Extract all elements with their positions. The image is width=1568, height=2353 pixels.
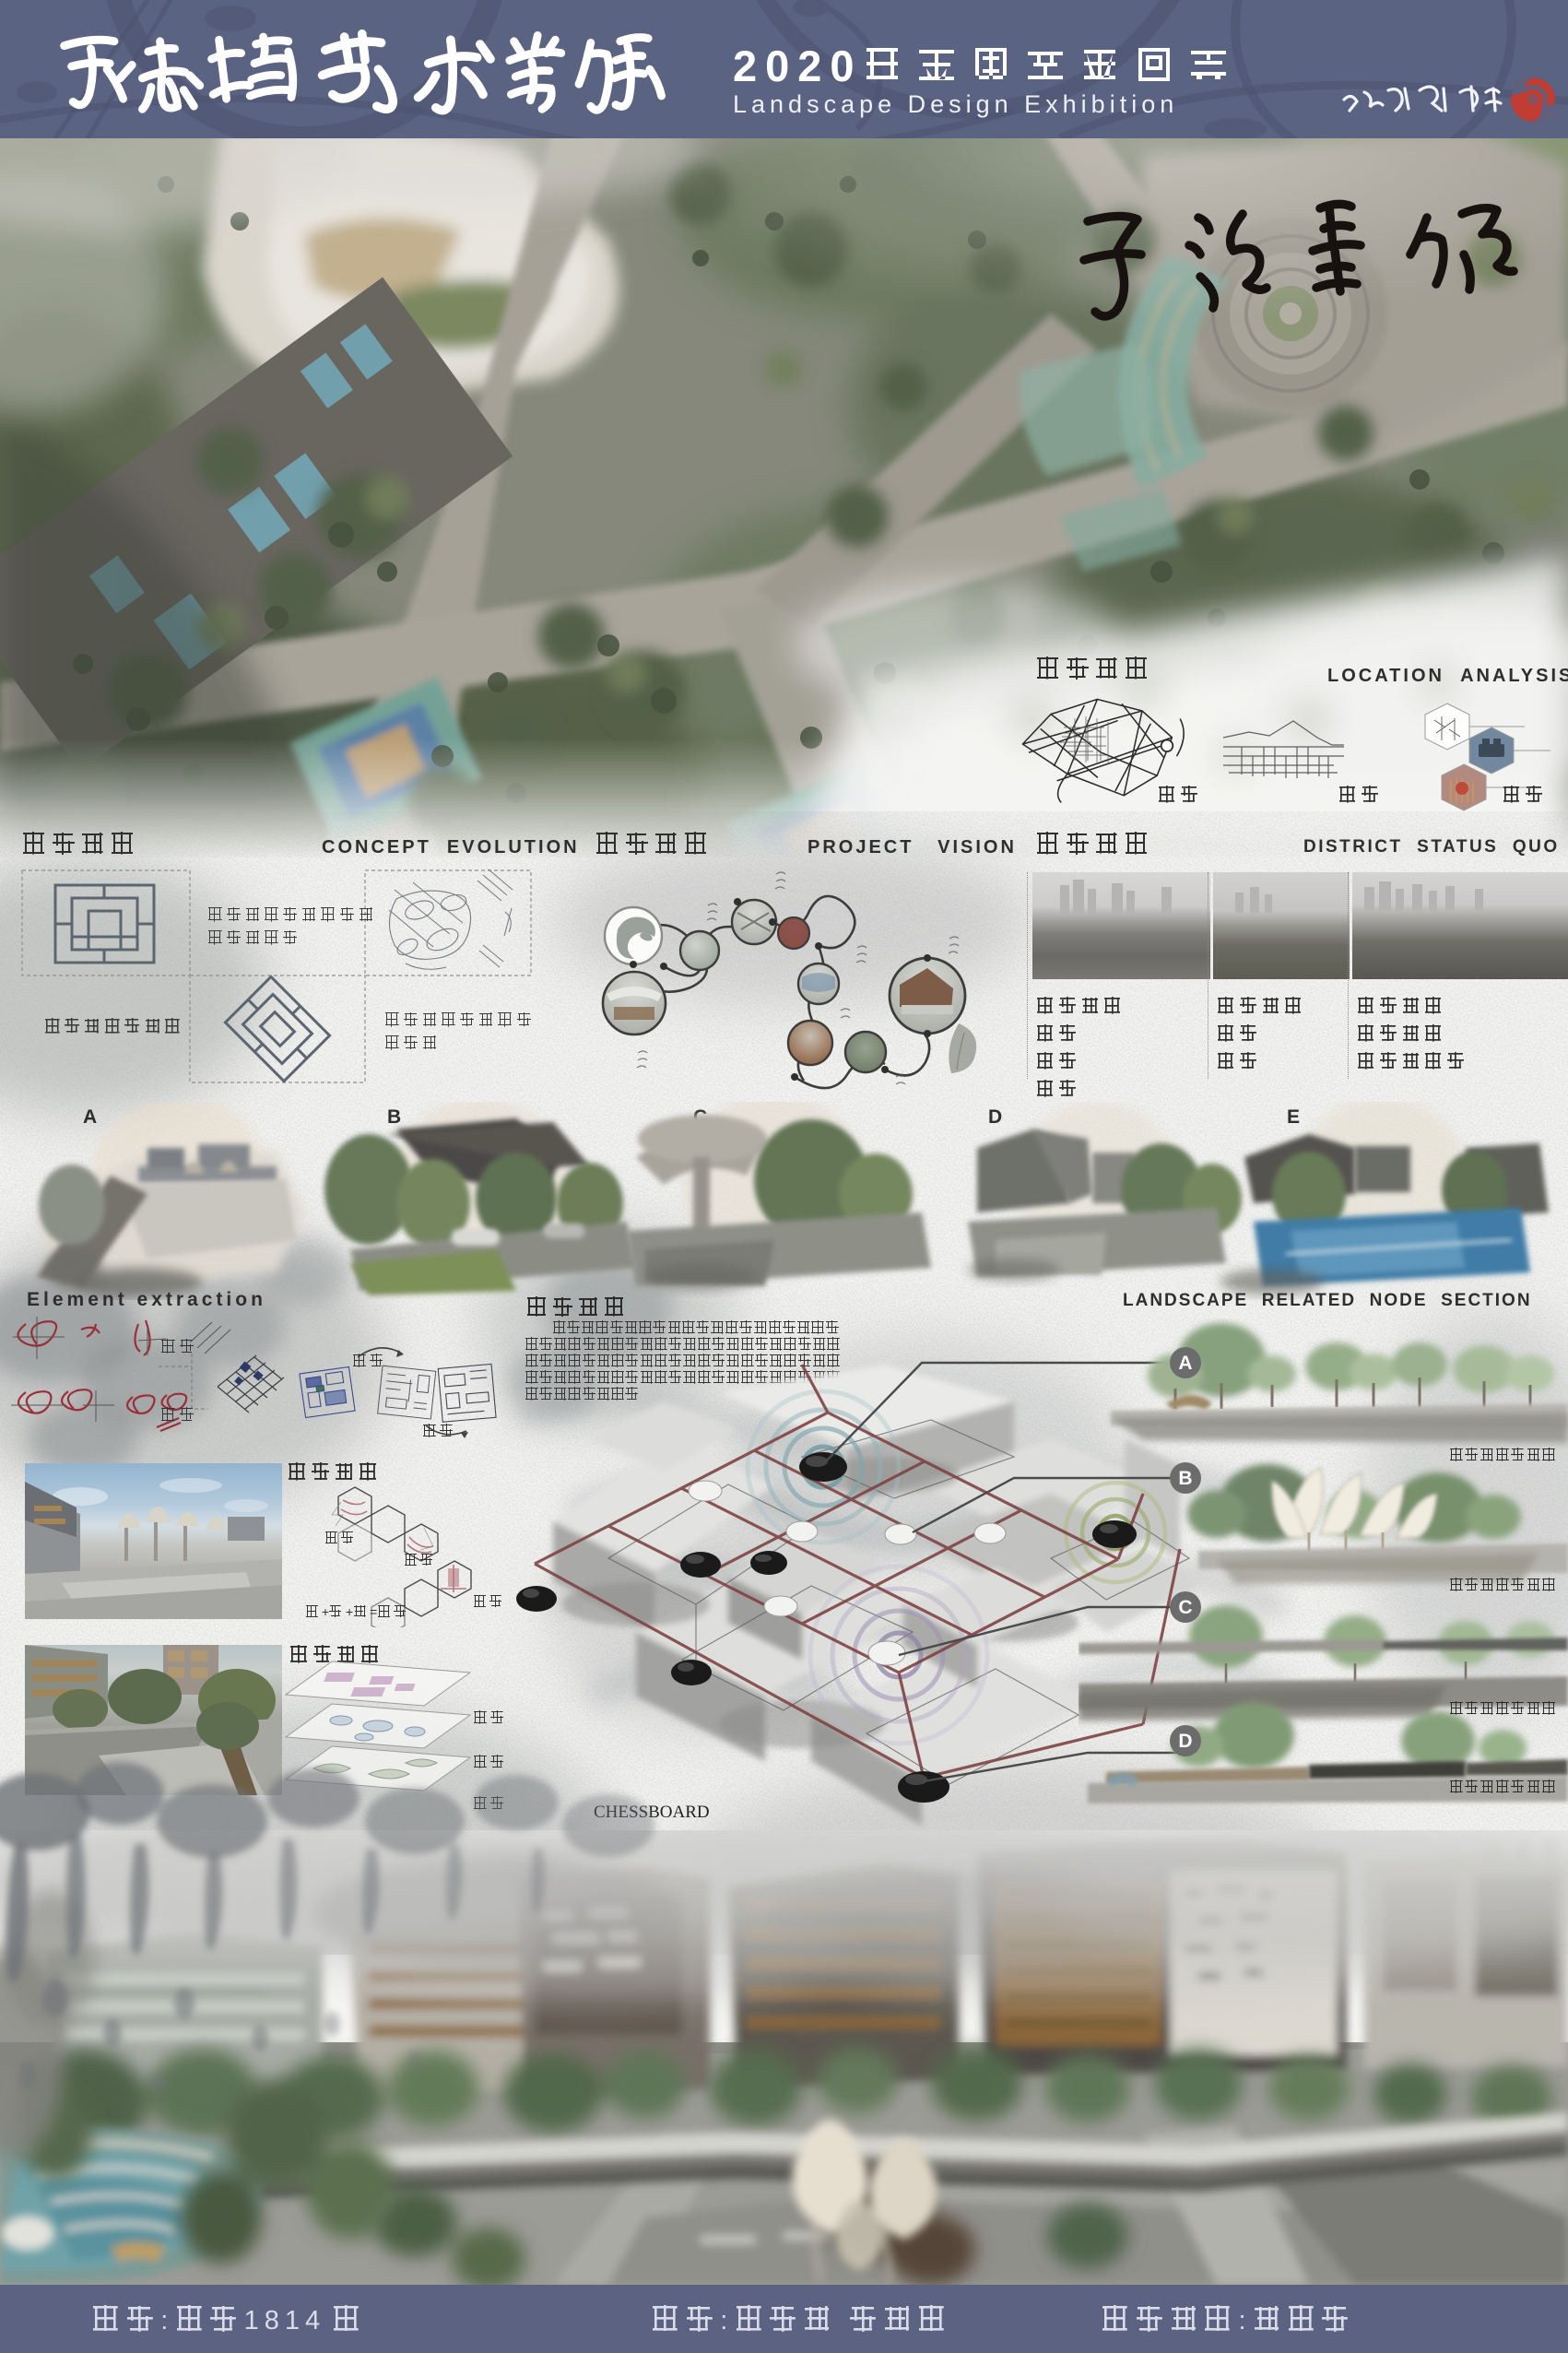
svg-text:C: C (1178, 1597, 1192, 1618)
svg-text:D: D (1178, 1731, 1192, 1752)
svg-text:B: B (1178, 1468, 1192, 1489)
svg-text:A: A (1178, 1353, 1192, 1374)
